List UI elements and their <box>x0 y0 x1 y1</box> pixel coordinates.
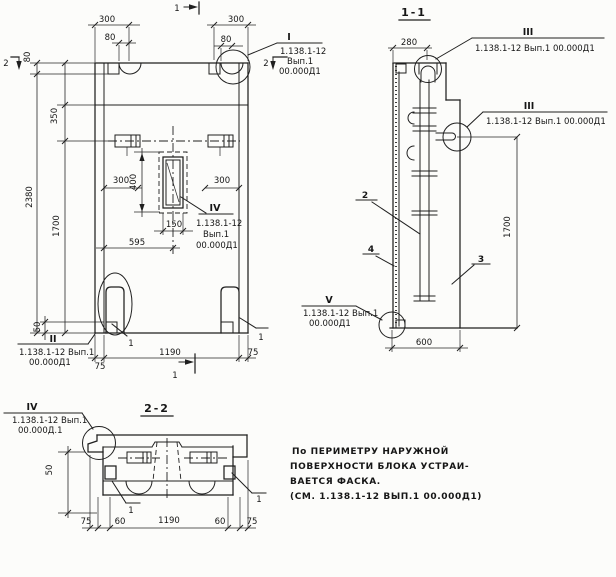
dim-300-mid-right: 300 <box>214 176 230 186</box>
callout-IV-section-line2: 00.000Д.1 <box>18 426 63 436</box>
leader-1-left-22: 1 <box>128 506 133 516</box>
detail-boundary-II <box>98 273 132 335</box>
part-3-label: 3 <box>478 255 484 265</box>
callout-IV-front: IV 1.138.1-12 Вып.1 00.000Д1 <box>196 203 242 251</box>
dim-400: 400 <box>129 174 139 190</box>
dim-150: 150 <box>166 220 182 230</box>
dim-350: 350 <box>50 108 60 124</box>
dim-1190-front: 1190 <box>159 348 181 358</box>
callout-I-line1: 1.138.1-12 <box>280 47 326 57</box>
leader-1-left-label: 1 <box>128 339 133 349</box>
front-central-slot <box>159 126 187 255</box>
dim-595: 595 <box>129 238 145 248</box>
dim-80-top-left: 80 <box>105 33 116 43</box>
callout-I: I 1.138.1-12 Вып.1 00.000Д1 <box>279 32 326 77</box>
dim-80-side: 80 <box>23 52 33 63</box>
part-2-label: 2 <box>362 191 368 201</box>
callout-IIIb-numeral: III <box>524 101 535 112</box>
leader-1-right-label: 1 <box>258 333 263 343</box>
dim-75-right: 75 <box>248 348 259 358</box>
front-anchor-plates <box>108 135 240 156</box>
callout-II-line2: 00.000Д1 <box>29 358 71 368</box>
callout-IV-numeral: IV <box>210 203 222 214</box>
callout-V-line1: 1.138.1-12 Вып.1 <box>303 309 378 319</box>
callout-V-numeral: V <box>325 295 333 306</box>
dim-50-front: 50 <box>33 322 43 333</box>
dim-75-left: 75 <box>95 362 106 372</box>
section-1-1: 1-1 <box>302 6 607 352</box>
marker-right-label: 2 <box>263 59 268 69</box>
callout-I-line2: Вып.1 <box>287 57 313 67</box>
dim-75-left-22: 75 <box>81 517 92 527</box>
dim-60-left-22: 60 <box>115 517 126 527</box>
front-view-outline <box>95 63 248 333</box>
callout-II-numeral: II <box>49 334 56 345</box>
dim-300-top-left: 300 <box>99 15 115 25</box>
callout-I-numeral: I <box>287 32 291 43</box>
dim-80-top-right: 80 <box>221 35 232 45</box>
section-2-2-title: 2-2 <box>144 402 170 415</box>
front-bottom-cutouts <box>98 273 239 335</box>
note-line-4: (СМ. 1.138.1-12 ВЫП.1 00.000Д1) <box>290 492 482 502</box>
section-marker-2-left <box>11 57 22 70</box>
callout-IV-line1: 1.138.1-12 <box>196 219 242 229</box>
section-1-1-outline <box>390 63 517 328</box>
section-1-1-anchor-rod <box>407 66 437 301</box>
callout-IV-line2: Вып.1 <box>203 230 229 240</box>
front-top-notches <box>108 63 243 74</box>
note-line-2: ПОВЕРХНОСТИ БЛОКА УСТРАИ- <box>290 462 469 472</box>
dim-1700-front: 1700 <box>52 215 62 237</box>
callout-IV-section-numeral: IV <box>27 402 39 413</box>
marker-left-label: 2 <box>3 59 8 69</box>
dim-60-right-22: 60 <box>215 517 226 527</box>
callout-IV-section: IV 1.138.1-12 Вып.1 00.000Д.1 <box>12 402 87 436</box>
section-2-2: 2-2 <box>4 402 266 531</box>
callout-IIIa-numeral: III <box>523 27 534 38</box>
dim-600: 600 <box>416 338 432 348</box>
callout-V-line2: 00.000Д1 <box>309 319 351 329</box>
note-line-1: По ПЕРИМЕТРУ НАРУЖНОЙ <box>292 445 449 457</box>
marker-top-label: 1 <box>174 4 179 14</box>
dim-50-section: 50 <box>45 465 55 476</box>
dim-280: 280 <box>401 38 417 48</box>
leader-1-right-22: 1 <box>256 495 261 505</box>
note-line-3: ВАЕТСЯ ФАСКА. <box>290 477 381 487</box>
dim-1190-22: 1190 <box>158 516 180 526</box>
section-1-1-leaders <box>302 38 607 320</box>
callout-II-line1: 1.138.1-12 Вып.1 <box>19 348 94 358</box>
section-2-2-outline <box>88 435 247 498</box>
part-4-label: 4 <box>368 245 374 255</box>
dim-1700-section: 1700 <box>503 216 513 238</box>
dim-300-top-right: 300 <box>228 15 244 25</box>
dim-300-mid-left: 300 <box>113 176 129 186</box>
section-marker-1-top <box>184 2 199 14</box>
section-1-1-dimensions <box>385 45 520 352</box>
section-1-1-title: 1-1 <box>401 6 427 19</box>
section-marker-1-bottom <box>179 354 195 373</box>
dim-75-right-22: 75 <box>247 517 258 527</box>
block-drawing: 1 1 2 2 300 80 300 80 80 350 2380 1700 4… <box>0 0 616 577</box>
front-view: 1 1 2 2 300 80 300 80 80 350 2380 1700 4… <box>3 2 326 381</box>
callout-II: II 1.138.1-12 Вып.1 00.000Д1 <box>19 334 94 368</box>
drawing-sheet: 1 1 2 2 300 80 300 80 80 350 2380 1700 4… <box>0 0 616 577</box>
front-callout-leaders <box>18 43 322 344</box>
detail-V-step <box>396 320 405 328</box>
callout-IV-section-line1: 1.138.1-12 Вып.1 <box>12 416 87 426</box>
callout-IIIb-text: 1.138.1-12 Вып.1 00.000Д1 <box>486 117 606 127</box>
callout-IIIa-text: 1.138.1-12 Вып.1 00.000Д1 <box>475 44 595 54</box>
callout-IV-line3: 00.000Д1 <box>196 241 238 251</box>
front-dimensions <box>30 22 256 362</box>
chamfer-note: По ПЕРИМЕТРУ НАРУЖНОЙ ПОВЕРХНОСТИ БЛОКА … <box>290 445 482 502</box>
section-1-1-mid-anchor <box>436 133 517 140</box>
marker-bottom-label: 1 <box>172 371 177 381</box>
callout-I-line3: 00.000Д1 <box>279 67 321 77</box>
detail-circle-IV <box>83 427 116 460</box>
dim-2380: 2380 <box>25 186 35 208</box>
